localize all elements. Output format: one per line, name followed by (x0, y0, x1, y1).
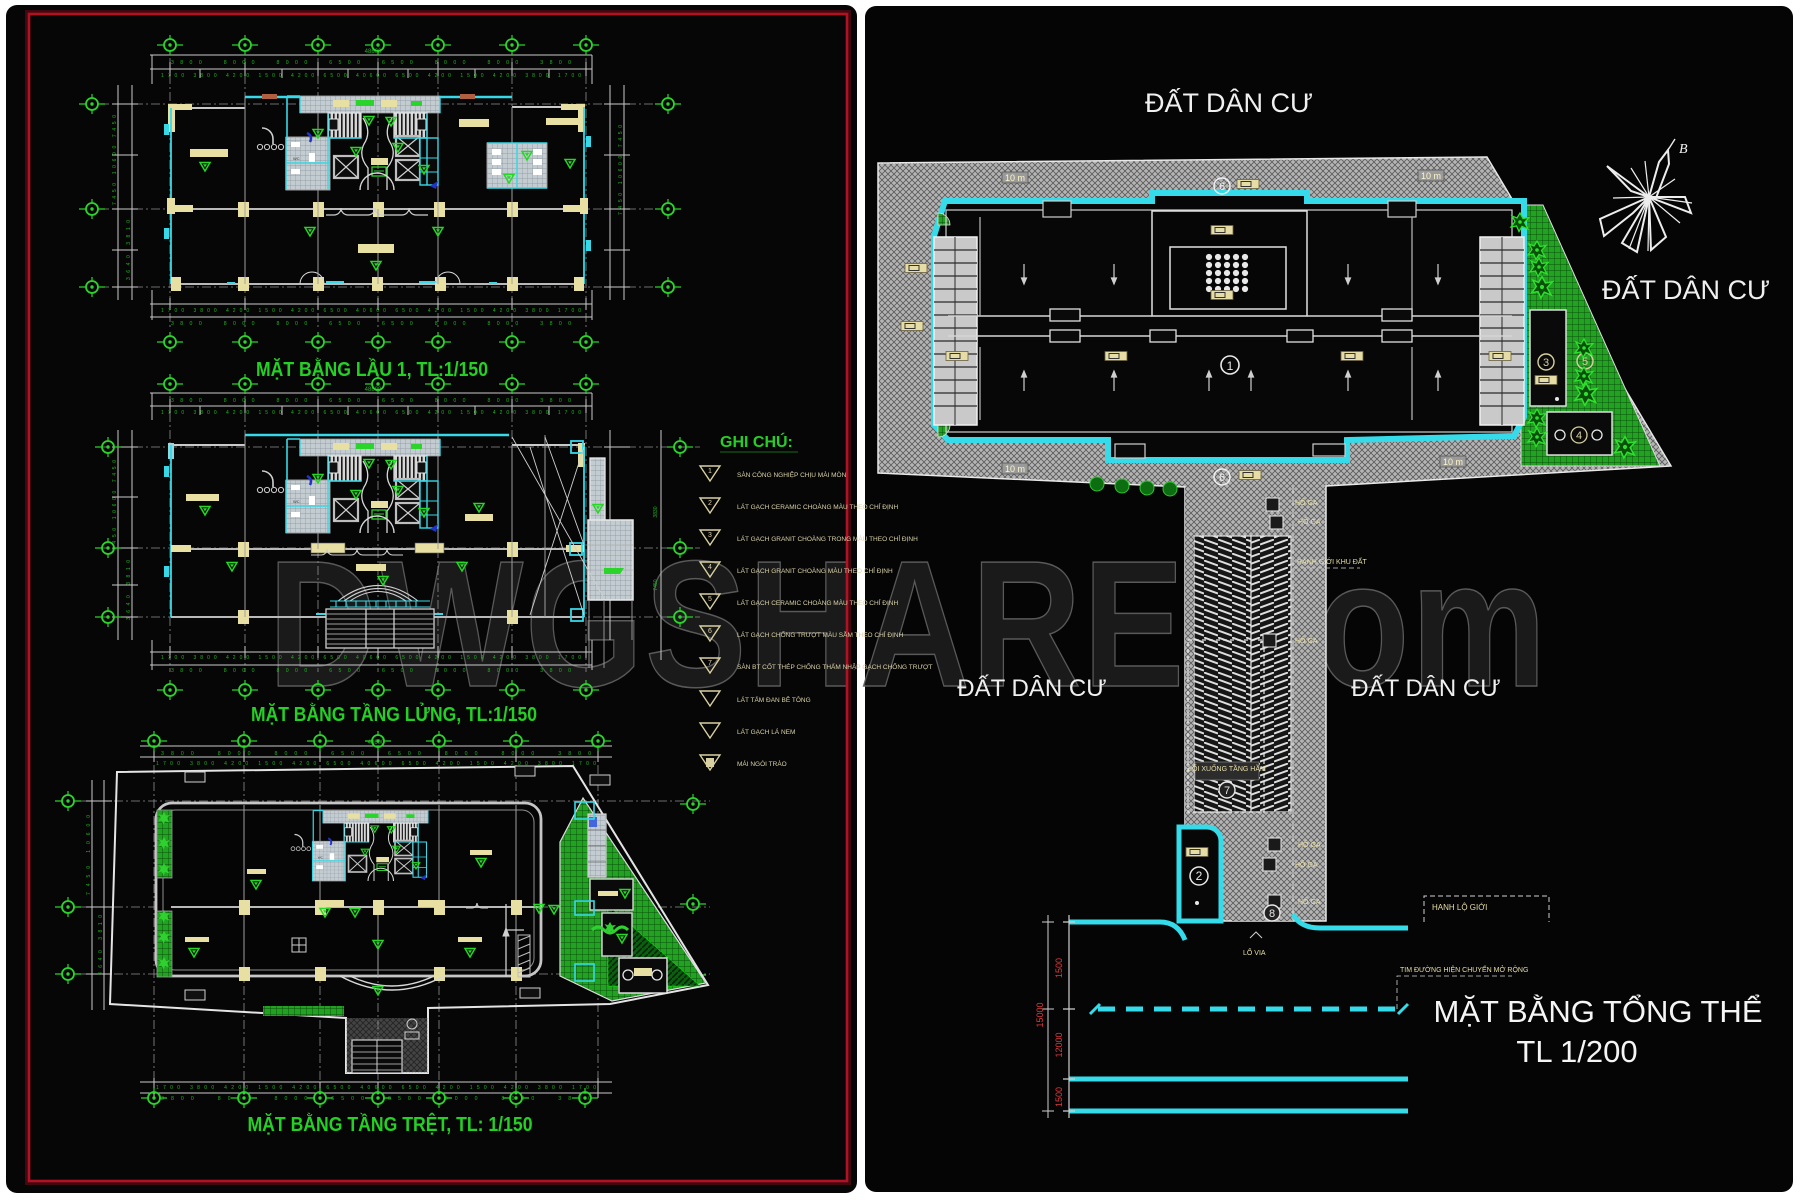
svg-text:3: 3 (708, 532, 712, 539)
svg-text:1: 1 (708, 468, 712, 475)
svg-text:1500: 1500 (1054, 958, 1064, 978)
svg-text:ĐẤT DÂN CƯ: ĐẤT DÂN CƯ (1602, 274, 1770, 305)
svg-text:15000: 15000 (1035, 1002, 1045, 1027)
svg-text:6: 6 (1219, 472, 1225, 484)
svg-text:LỔ VIA: LỔ VIA (1243, 948, 1266, 957)
svg-text:3: 3 (1543, 357, 1549, 369)
svg-text:LÁT GẠCH LÁ NEM: LÁT GẠCH LÁ NEM (737, 727, 795, 736)
svg-text:2: 2 (1196, 869, 1203, 883)
svg-text:7: 7 (1224, 785, 1230, 797)
svg-text:1500: 1500 (1054, 1087, 1064, 1107)
svg-text:10 m: 10 m (1421, 171, 1441, 181)
svg-text:10 m: 10 m (1443, 457, 1463, 467)
svg-text:3640 3810: 3640 3810 (98, 915, 104, 975)
svg-text:3640 3810: 3640 3810 (126, 560, 132, 620)
svg-text:8: 8 (1269, 908, 1275, 920)
svg-text:MẶT BẰNG LẦU 1, TL:1/150: MẶT BẰNG LẦU 1, TL:1/150 (256, 357, 488, 381)
svg-text:10 m: 10 m (1005, 173, 1025, 183)
svg-text:GHI CHÚ:: GHI CHÚ: (720, 432, 793, 451)
svg-text:LÁT GẠCH CERAMIC CHOÀNG MÀU TH: LÁT GẠCH CERAMIC CHOÀNG MÀU THEO CHỈ ĐỊN… (737, 598, 898, 607)
svg-text:LÁT GẠCH CERAMIC CHOÀNG MÀU TH: LÁT GẠCH CERAMIC CHOÀNG MÀU THEO CHỈ ĐỊN… (737, 502, 898, 511)
svg-text:10 m: 10 m (1005, 464, 1025, 474)
svg-text:TL 1/200: TL 1/200 (1516, 1034, 1637, 1069)
svg-text:12000: 12000 (1054, 1032, 1064, 1057)
svg-text:ĐẤT DÂN CƯ: ĐẤT DÂN CƯ (1351, 674, 1500, 702)
svg-text:7450: 7450 (653, 579, 659, 590)
svg-text:4: 4 (1576, 430, 1582, 442)
svg-text:4: 4 (708, 564, 712, 571)
svg-text:2: 2 (708, 500, 712, 507)
svg-text:7450 10600 7450: 7450 10600 7450 (112, 460, 118, 550)
svg-text:LÁT GẠCH GRANIT CHOÀNG TRONG M: LÁT GẠCH GRANIT CHOÀNG TRONG MÀU THEO CH… (737, 534, 918, 543)
svg-text:HANH LỘ GIỚI: HANH LỘ GIỚI (1432, 903, 1487, 912)
svg-text:ĐẤT DÂN CƯ: ĐẤT DÂN CƯ (1145, 87, 1313, 118)
svg-text:MÁI NGÓI TRÀO: MÁI NGÓI TRÀO (737, 759, 787, 768)
svg-text:7450 10600 7450: 7450 10600 7450 (112, 115, 118, 205)
svg-text:MẶT BẰNG TẦNG LỬNG, TL:1/150: MẶT BẰNG TẦNG LỬNG, TL:1/150 (251, 702, 537, 726)
svg-text:3830: 3830 (653, 506, 659, 517)
svg-text:SÀN CÔNG NGHIỆP CHỊU MÀI MÒN: SÀN CÔNG NGHIỆP CHỊU MÀI MÒN (737, 470, 847, 479)
svg-text:6: 6 (1219, 181, 1225, 193)
svg-text:B: B (1679, 142, 1688, 157)
svg-text:7450 10600 7450: 7450 10600 7450 (618, 125, 624, 215)
svg-text:MẶT BẰNG TẦNG TRỆT, TL: 1/150: MẶT BẰNG TẦNG TRỆT, TL: 1/150 (248, 1112, 533, 1136)
svg-text:3640 3810: 3640 3810 (126, 220, 132, 280)
svg-text:7: 7 (708, 660, 712, 667)
svg-text:LÁT GẠCH GRANIT CHOÀNG MÀU THE: LÁT GẠCH GRANIT CHOÀNG MÀU THEO CHỈ ĐỊNH (737, 566, 893, 575)
svg-text:1: 1 (1227, 359, 1234, 373)
svg-text:6: 6 (708, 628, 712, 635)
svg-text:5: 5 (708, 596, 712, 603)
svg-text:MẶT BẰNG TỔNG THỂ: MẶT BẰNG TỔNG THỂ (1434, 993, 1763, 1029)
svg-text:ĐẤT DÂN CƯ: ĐẤT DÂN CƯ (957, 674, 1106, 702)
